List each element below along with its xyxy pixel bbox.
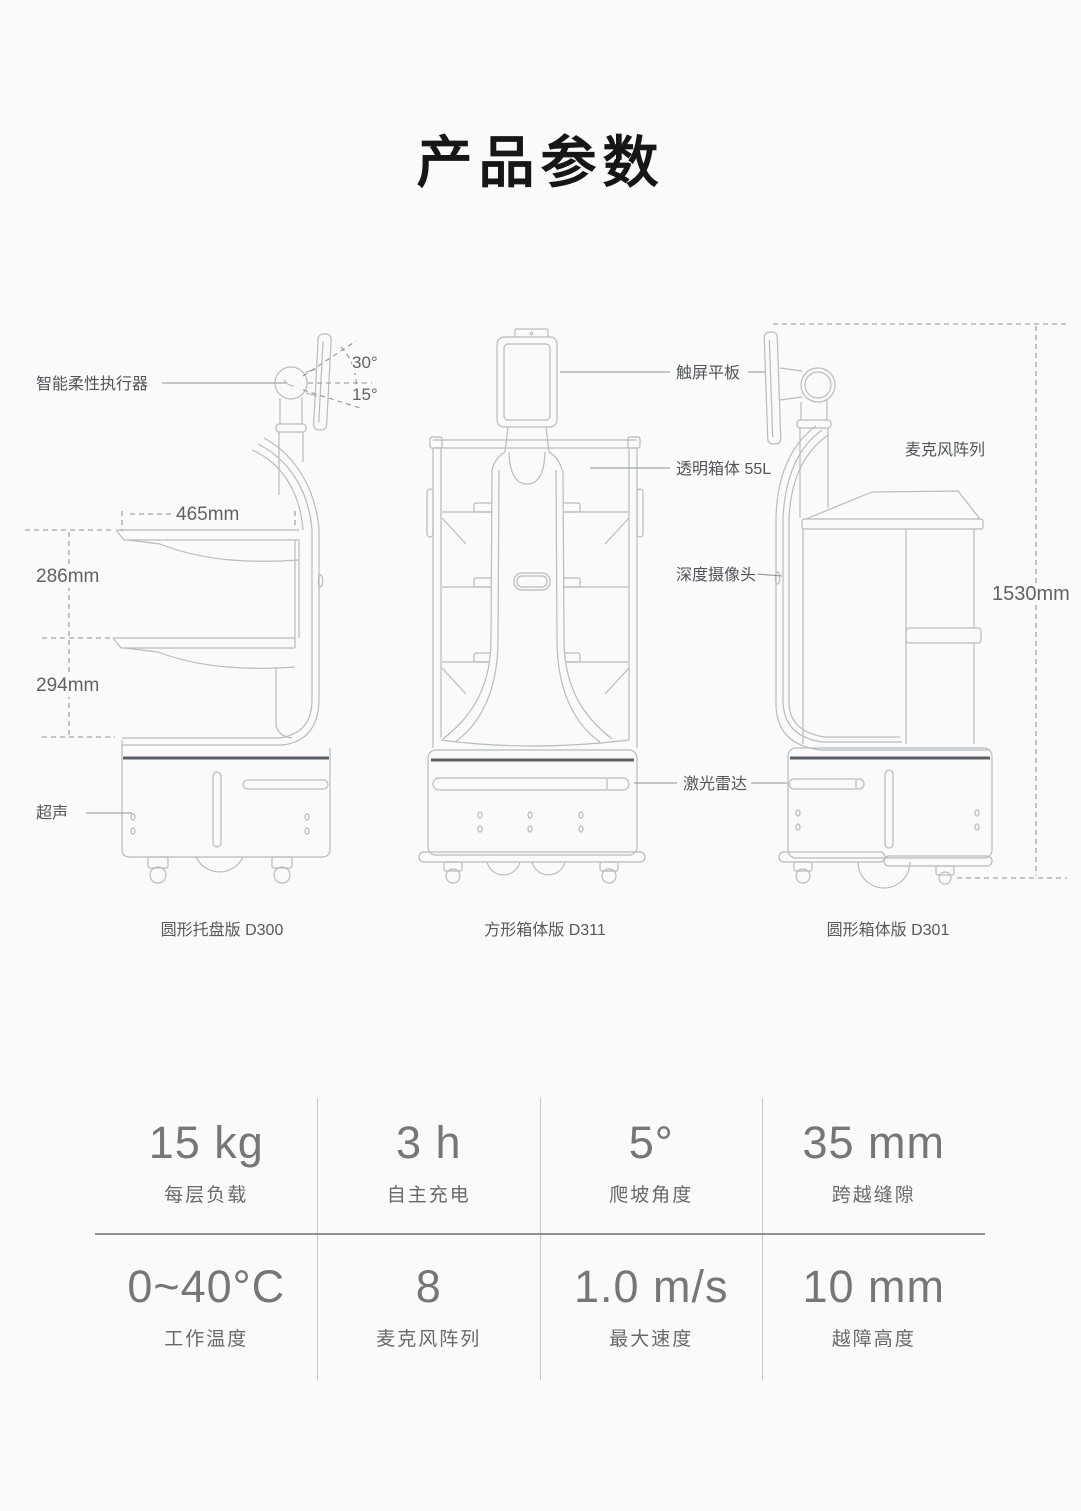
dim-tilt-down: 15°	[352, 385, 378, 405]
spec-divider-vertical	[317, 1235, 318, 1380]
spec-label: 跨越缝隙	[832, 1180, 916, 1207]
product-spec-page: 产品参数	[0, 0, 1081, 1511]
dim-tray-width: 465mm	[176, 505, 239, 526]
spec-cell-obstacle: 10 mm 越障高度	[763, 1234, 986, 1380]
callout-lines	[86, 372, 787, 813]
dim-tilt-up: 30°	[352, 353, 378, 373]
dim-lower-gap: 294mm	[36, 676, 99, 697]
dim-upper-gap: 286mm	[36, 567, 99, 588]
spec-grid: 15 kg 每层负载 3 h 自主充电 5° 爬坡角度 35 mm 跨越缝隙 0…	[95, 1093, 985, 1380]
spec-label: 最大速度	[609, 1324, 693, 1351]
spec-cell-slope: 5° 爬坡角度	[540, 1093, 763, 1234]
label-touch-tablet: 触屏平板	[676, 364, 740, 384]
robot-d311-drawing	[419, 329, 645, 883]
label-actuator: 智能柔性执行器	[36, 375, 148, 395]
spec-divider-vertical	[317, 1098, 318, 1233]
robot-d301-drawing	[764, 332, 992, 888]
dim-height: 1530mm	[992, 583, 1070, 605]
spec-cell-temperature: 0~40°C 工作温度	[95, 1234, 318, 1380]
spec-label: 工作温度	[164, 1324, 248, 1351]
label-ultrasonic: 超声	[36, 804, 68, 824]
label-mic-array: 麦克风阵列	[905, 441, 985, 461]
spec-divider-vertical	[540, 1235, 541, 1380]
spec-cell-speed: 1.0 m/s 最大速度	[540, 1234, 763, 1380]
spec-value: 0~40°C	[127, 1264, 285, 1309]
caption-d300: 圆形托盘版 D300	[161, 916, 284, 940]
caption-d311: 方形箱体版 D311	[484, 916, 606, 940]
spec-value: 3 h	[396, 1120, 462, 1165]
spec-value: 5°	[629, 1120, 674, 1165]
label-depth-camera: 深度摄像头	[676, 566, 756, 586]
caption-d301: 圆形箱体版 D301	[827, 916, 950, 940]
spec-value: 35 mm	[802, 1120, 945, 1165]
spec-label: 每层负载	[164, 1180, 248, 1207]
label-lidar: 激光雷达	[683, 775, 747, 795]
spec-label: 自主充电	[387, 1180, 471, 1207]
spec-value: 10 mm	[802, 1264, 945, 1309]
spec-value: 15 kg	[149, 1120, 264, 1165]
spec-value: 8	[416, 1264, 442, 1309]
spec-value: 1.0 m/s	[574, 1264, 729, 1309]
spec-divider-vertical	[762, 1098, 763, 1233]
spec-label: 越障高度	[832, 1324, 916, 1351]
spec-divider-vertical	[762, 1235, 763, 1380]
spec-divider-vertical	[540, 1098, 541, 1233]
label-transparent-box: 透明箱体 55L	[676, 460, 771, 480]
robot-d300-drawing	[113, 334, 331, 883]
spec-cell-mics: 8 麦克风阵列	[318, 1234, 541, 1380]
spec-label: 爬坡角度	[609, 1180, 693, 1207]
spec-cell-payload: 15 kg 每层负载	[95, 1093, 318, 1234]
spec-label: 麦克风阵列	[376, 1324, 481, 1351]
spec-cell-charging: 3 h 自主充电	[318, 1093, 541, 1234]
spec-cell-gap: 35 mm 跨越缝隙	[763, 1093, 986, 1234]
